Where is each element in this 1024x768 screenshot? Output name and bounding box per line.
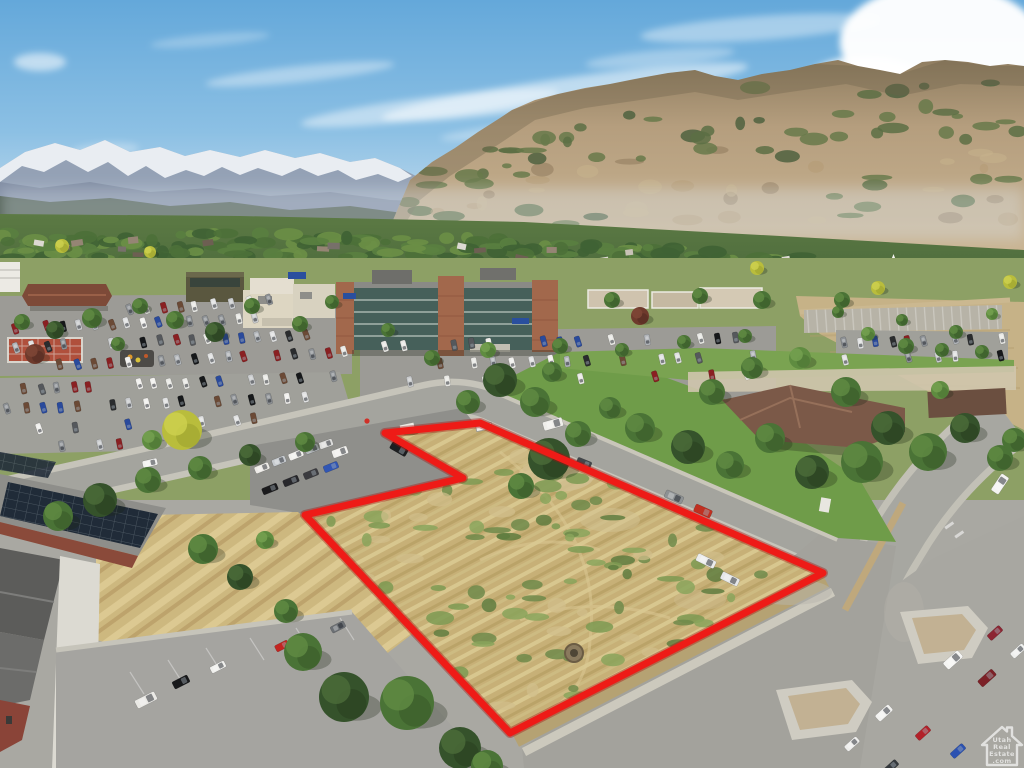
mountain-patch [832,110,855,118]
valley-tree-clump [580,239,602,250]
mountain-patch [980,153,1007,163]
scrub-bush [525,613,550,621]
scrub-bush [620,633,640,642]
mountain-patch [577,165,599,178]
scrub-bush [516,654,532,663]
valley-tree-clump [401,244,426,252]
mountain-patch [995,119,1015,124]
scrub-bush [511,519,529,531]
scrub-bush [527,683,539,697]
house-roof [547,247,557,253]
mountain-patch [532,131,556,145]
house-roof [328,243,340,250]
scrub-bush [489,506,516,517]
scrub-bush [469,521,484,534]
mountain-patch [800,133,828,146]
watermark-line-4: .com [992,757,1011,765]
scrub-bush [506,594,516,599]
mountain-patch [516,147,547,153]
mountain-patch [857,90,882,99]
house-roof [128,236,139,244]
fire-pit-ring [565,644,583,662]
scrub-bush [657,576,684,582]
scrub-bush [497,533,522,541]
valley-tree-clump [17,248,34,254]
scrub-bush [431,585,446,591]
valley-tree-clump [300,237,329,245]
scrub-bush [536,515,552,526]
valley-tree-clump [698,246,727,259]
scrub-bush [471,641,494,647]
scrub-bush [577,608,588,616]
valley-tree-clump [274,228,303,240]
valley-tree-clump [407,239,429,245]
scrub-bush [396,554,424,564]
mountain-patch [525,176,549,184]
scrub-bush [369,536,390,543]
aerial-photo-canvas: Utah Real Estate .com [0,0,1024,768]
scrub-bush [494,469,514,476]
scrub-bush [409,513,428,522]
mountain-patch [879,112,896,122]
blue-sign [512,318,529,324]
house-roof [133,252,144,257]
scrub-bush [434,629,450,637]
mountain-patch [574,123,587,131]
scrub-bush [601,654,625,667]
mountain-patch [528,153,547,165]
scrub-bush [468,585,485,599]
house-roof [118,246,126,251]
valley-tree-clump [1,237,15,247]
mountain-patch [980,164,989,173]
valley-tree-clump [146,234,158,247]
blue-sign [288,272,306,279]
scrub-bush [568,685,578,692]
scrub-bush [362,533,372,546]
mountain-patch [970,174,992,185]
mountain-patch [563,136,572,147]
hydrant [364,418,369,423]
building-white-left [0,262,20,292]
house-roof [474,247,486,253]
scrub-bush [564,578,577,584]
mountain-patch [932,109,959,116]
scrub-bush [522,580,543,590]
mountain-patch [643,116,662,121]
scrub-bush [622,548,646,553]
valley-tree-clump [192,228,217,239]
scrub-bush [326,516,335,527]
mountain-patch [972,122,999,131]
scrub-bush [548,598,566,613]
blue-sign [343,293,356,299]
scrub-bush [622,569,631,579]
valley-tree-clump [392,235,411,241]
scrub-bush [413,525,438,531]
scrub-bush [567,546,593,553]
valley-tree-clump [341,231,352,245]
mountain-patch [693,142,717,154]
scrub-bush [381,509,391,522]
scrub-bush [668,533,677,547]
valley-tree-clump [380,239,390,246]
scrub-bush [552,523,561,529]
scrub-bush [590,496,603,505]
building-red-roof [22,284,112,311]
scrub-bush [701,588,724,594]
scrub-bush [368,522,390,528]
mountain-patch [636,155,646,161]
valley-tree-clump [662,243,685,256]
mountain-patch [959,134,972,145]
mountain-patch [862,175,893,181]
scrub-bush [754,570,768,578]
mountain-patch [531,162,554,176]
scrub-bush [482,598,497,612]
mountain-patch [455,169,483,183]
mountain-patch [775,150,800,162]
scrub-bush [586,621,614,633]
scrub-bush [673,620,694,626]
scrub-bush [555,491,567,500]
valley-tree-clump [171,248,191,259]
mountain-patch [753,117,764,124]
mountain-patch [513,171,530,177]
valley-tree-clump [377,248,404,257]
mountain-patch [588,152,605,162]
listing-photo: Utah Real Estate .com [0,0,1024,768]
scrub-bush [483,527,511,533]
scrub-bush [465,534,484,540]
mountain-patch [918,99,933,114]
valley-tree-clump [643,244,654,251]
building-bronze-offices [186,272,244,302]
mountain-patch [623,111,635,120]
valley-tree-clump [213,228,238,238]
scrub-bush [522,595,546,601]
scrub-bush [600,515,625,521]
scrub-bush [448,603,469,609]
scrub-bush [565,534,575,542]
scrub-bush [502,608,528,620]
mountain-patch [830,132,848,142]
scrub-bush [540,493,551,504]
scrub-bush [571,500,590,511]
valley-tree-clump [187,247,203,256]
scrub-bush [586,559,605,565]
house-roof [625,249,633,256]
scrub-bush [427,492,452,506]
mountain-patch [808,161,824,173]
mountain-patch [871,128,883,139]
valley-tree-clump [176,231,187,239]
valley-tree-clump [254,237,276,248]
scrub-bush [608,565,619,570]
mountain-patch [735,117,745,130]
mountain-patch [940,158,955,165]
mountain-patch [756,146,774,154]
scrub-bush [426,611,454,625]
mountain-patch [502,163,512,168]
mountain-patch [939,126,954,139]
car [952,350,959,362]
valley-tree-clump [468,236,489,244]
valley-tree-clump [439,232,454,243]
valley-tree-clump [227,243,252,249]
scrub-bush [614,601,624,614]
scrub-bush [676,580,695,594]
mountain-patch [994,176,1022,183]
mountain-patch [701,126,714,137]
cloud [14,53,66,71]
house-roof [317,246,329,252]
scrub-bush [727,593,735,602]
scrub-bush [547,626,572,636]
